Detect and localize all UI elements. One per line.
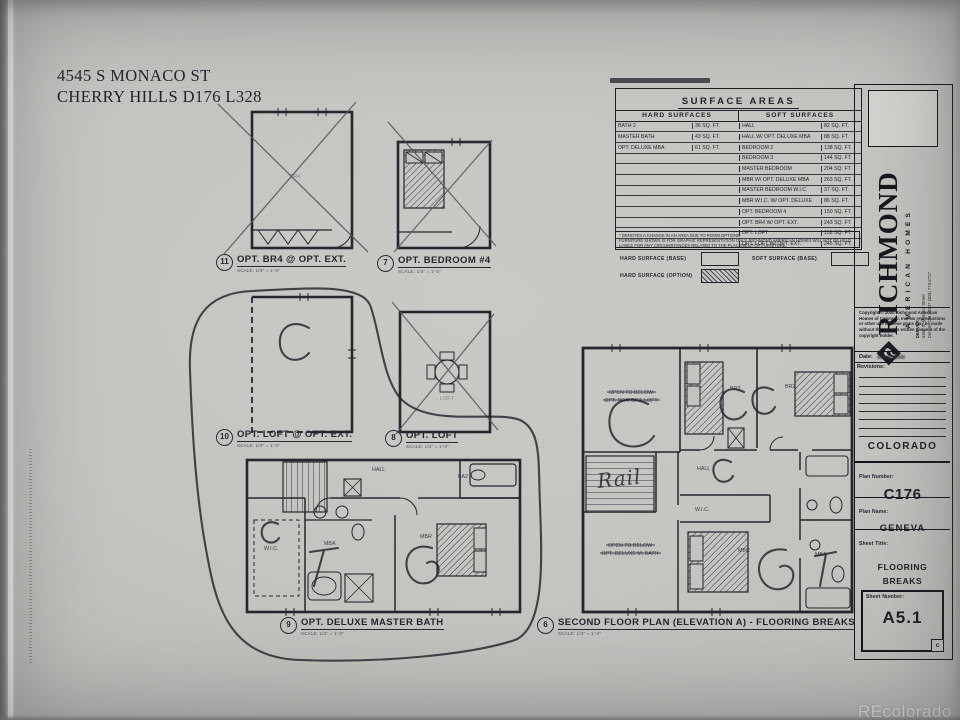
plan7-door-arc (458, 226, 480, 248)
plan-label-9: 9 OPT. DELUXE MASTER BATH SCALE: 1/4" = … (280, 617, 444, 636)
plan-label-11: 11 OPT. BR4 @ OPT. EXT. SCALE: 1/4" = 1'… (216, 254, 346, 273)
legend-row-1: HARD SURFACE (BASE) SOFT SURFACE (BASE) (620, 252, 869, 266)
date-row: Date: (855, 351, 950, 363)
sheet-title-block: Sheet Title: FLOORING BREAKS (855, 529, 950, 587)
surface-table-notes: * DENOTES A CHANGE IN AN AREA DUE TO ROO… (615, 231, 860, 248)
plan6-hall-label: HALL (697, 466, 710, 472)
plan9-hall-label: HALL (372, 467, 385, 473)
date-value-smudge (877, 355, 905, 360)
revision-rule (859, 395, 946, 403)
plan6-ba2-tub (806, 456, 848, 476)
hard-surfaces-header: HARD SURFACES (616, 111, 738, 121)
plan6-opt-deluxe-label: OPT. DELUXE M. BATH (601, 551, 658, 557)
surface-table-header: HARD SURFACES SOFT SURFACES (616, 110, 861, 122)
pen-c-plan9-wic (262, 522, 279, 542)
plan-number-bubble: 10 (216, 429, 233, 446)
plan-label-10: 10 OPT. LOFT @ OPT. EXT. SCALE: 1/4" = 1… (216, 429, 352, 448)
plan-title: SECOND FLOOR PLAN (ELEVATION A) - FLOORI… (558, 617, 855, 630)
plan-title: OPT. LOFT (406, 430, 458, 443)
handwritten-rail: Rail (595, 464, 642, 493)
plan11-closet-doors (258, 230, 318, 244)
revision-rule (859, 370, 946, 378)
plan11-walls (252, 112, 352, 248)
plan6-ba2-sink (807, 500, 817, 510)
table-row: OPT. DELUXE MBA61 SQ. FT.BEDROOM 2138 SQ… (616, 143, 861, 154)
pen-c-plan10 (280, 324, 309, 360)
sheet-title-label: Sheet Title: (859, 541, 888, 547)
plan-number-bubble: 8 (385, 430, 402, 447)
plan-label-7: 7 OPT. BEDROOM #4 SCALE: 1/4" = 1'-0" (377, 255, 491, 274)
plan10-walls (252, 297, 352, 432)
plan-number-bubble: 9 (280, 617, 297, 634)
titleblock-logo-box (868, 90, 938, 147)
legend-row-2: HARD SURFACE (OPTION) (620, 269, 739, 283)
plan6-mba-tub (806, 588, 850, 608)
plan-10-opt-loft-ext (252, 293, 356, 432)
legend-soft-base-label: SOFT SURFACE (BASE) (752, 256, 826, 262)
revision-rule (859, 412, 946, 420)
plan-title: OPT. BEDROOM #4 (398, 255, 491, 268)
surface-table-title: SURFACE AREAS (616, 89, 861, 110)
plan10-dashed-walls (252, 297, 312, 432)
plan-label-8: 8 OPT. LOFT SCALE: 1/4" = 1'-0" (385, 430, 458, 449)
blueprint-sheet: 4545 S MONACO ST CHERRY HILLS D176 L328 … (0, 0, 960, 720)
plan-name-label: Plan Name: (859, 509, 888, 515)
revision-rule (859, 404, 946, 412)
sheet-number-label: Sheet Number: (863, 592, 942, 600)
plan9-pillow (474, 528, 486, 549)
pen-c-plan6-openbelow (609, 400, 654, 447)
plan6-ba2-toilet (830, 497, 842, 513)
table-row: MASTER BEDROOM204 SQ. FT. (616, 164, 861, 175)
plan6-br2-label: BR2 (785, 384, 795, 390)
table-row: OPT. BR4 W/ OPT. EXT.243 SQ. FT. (616, 218, 861, 229)
plan9-wic-label: W.I.C. (264, 546, 278, 552)
plan6-mba-sink (810, 540, 820, 550)
table-row: BATH 236 SQ. FT.HALL82 SQ. FT. (616, 122, 861, 133)
plan9-mbr-door-arc (400, 498, 417, 515)
plan-name-block: Plan Name: GENEVA (855, 497, 950, 529)
plan-8-opt-loft: LOFT (392, 302, 498, 434)
pen-loop-around-options (190, 288, 541, 660)
table-row: OPT. BEDROOM 4150 SQ. FT. (616, 207, 861, 218)
plan-number-label: Plan Number: (859, 474, 894, 480)
legend-hard-option-swatch (701, 269, 739, 283)
legend-hard-base-swatch (701, 252, 739, 266)
revisions-block: Revisions: (855, 363, 950, 437)
titleblock-sidebar: RICHMOND AMERICAN HOMES DENVER 4350 S. M… (854, 84, 953, 660)
date-label: Date: (859, 354, 873, 360)
table-row: MBR W/ OPT. DELUXE MBA263 SQ. FT. (616, 175, 861, 186)
plan-label-6: 6 SECOND FLOOR PLAN (ELEVATION A) - FLOO… (537, 617, 855, 636)
table-row: MASTER BATH43 SQ. FT.HALL W/ OPT. DELUXE… (616, 132, 861, 143)
plan-number-bubble: 7 (377, 255, 394, 272)
plan11-pencil-x (218, 102, 368, 254)
plan-number-bubble: 6 (537, 617, 554, 634)
plan6-open-below-label: OPEN TO BELOW (609, 390, 653, 396)
recolorado-watermark: REcolorado (858, 702, 952, 720)
plan9-pillow (474, 551, 486, 572)
soft-surfaces-header: SOFT SURFACES (738, 111, 861, 121)
plan-scale: SCALE: 1/4" = 1'-0" (558, 631, 855, 636)
surface-areas-table: SURFACE AREAS HARD SURFACES SOFT SURFACE… (615, 88, 862, 250)
sheet-title-value: FLOORING BREAKS (859, 560, 946, 589)
plan-scale: SCALE: 1/4" = 1'-0" (406, 444, 458, 449)
plan-scale: SCALE: 1/4" = 1'-0" (301, 631, 444, 636)
pen-c-plan6-br3 (720, 389, 746, 419)
state-name: COLORADO (855, 437, 950, 457)
plan8-pencil-x (392, 302, 498, 434)
sheet-number-value: A5.1 (863, 608, 942, 628)
plan-7-opt-bedroom4 (388, 122, 496, 252)
plan9-mba-label: MBA (324, 541, 336, 547)
copyright-text: Copyright © 2000 Richmond American Homes… (855, 307, 950, 351)
plan-title: OPT. LOFT @ OPT. EXT. (237, 429, 352, 442)
plan-scale: SCALE: 1/4" = 1'-0" (398, 269, 491, 274)
sheet-number-block: Sheet Number: A5.1 c (861, 590, 944, 652)
plan6-mbr-label: MBR (738, 548, 750, 554)
pen-swirl-plan6-mbr (759, 549, 793, 589)
revision-rule (859, 429, 946, 437)
plan9-sink (336, 506, 348, 518)
plan9-ba2-label: BA2 (458, 474, 468, 480)
pen-c-plan6-br2 (752, 388, 775, 414)
table-row: MBR W.I.C. W/ OPT. DELUXE86 SQ. FT. (616, 196, 861, 207)
plan-scale: SCALE: 1/4" = 1'-0" (237, 268, 346, 273)
plan9-ba2-tub (470, 464, 516, 486)
pen-c-plan9-mbr (406, 547, 438, 584)
plan11-door-arc (332, 228, 352, 248)
plan-title: OPT. DELUXE MASTER BATH (301, 617, 444, 630)
plan9-mbr-label: MBR (420, 534, 432, 540)
plan-9-deluxe-master-bath: HALL BA2 W.I.C. MBA MBR (247, 460, 520, 616)
legend-hard-base-label: HARD SURFACE (BASE) (620, 256, 696, 262)
plan-number-bubble: 11 (216, 254, 233, 271)
legend-hard-option-label: HARD SURFACE (OPTION) (620, 273, 696, 279)
revision-rule (859, 378, 946, 386)
plan6-open-below2-label: OPEN TO BELOW (608, 543, 652, 549)
revision-rule (859, 387, 946, 395)
revision-rule (859, 420, 946, 428)
note-line-2: FURNITURE SHOWN IS FOR GRAPHIC REPRESENT… (619, 238, 856, 249)
plan8-room-label: LOFT (440, 396, 455, 402)
revision-letter: c (931, 639, 944, 652)
table-row: MASTER BEDROOM W.I.C.37 SQ. FT. (616, 186, 861, 197)
plan8-walls (400, 312, 490, 432)
plan-number-block: Plan Number: C176 (855, 461, 950, 497)
pen-c-plan6-hall (713, 460, 733, 482)
plan-title: OPT. BR4 @ OPT. EXT. (237, 254, 346, 267)
plan6-wic-label: W.I.C. (695, 507, 709, 513)
plan9-toilet (352, 524, 364, 540)
plan-scale: SCALE: 1/4" = 1'-0" (237, 443, 352, 448)
table-row: BEDROOM 3144 SQ. FT. (616, 154, 861, 165)
plan-11-opt-br4: BR4 (218, 102, 368, 254)
plan6-mba-toilet (832, 566, 844, 582)
